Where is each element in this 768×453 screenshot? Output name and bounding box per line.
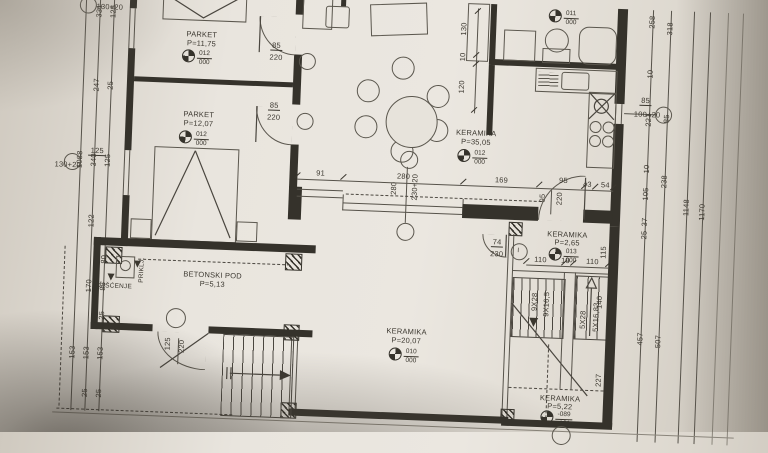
door-leaf (506, 235, 507, 257)
stair-direction-line (590, 288, 592, 336)
stair-break-line (508, 303, 590, 396)
floor-plan: 125 331 247 25 1088 125 340 122 25 80 17… (0, 0, 768, 447)
ext-stair-arrow-line (230, 373, 280, 375)
terrace-marker-triangle (107, 273, 114, 280)
door-leaf (259, 16, 260, 52)
door-leaf (256, 106, 257, 142)
ext-stair-arrow-head (280, 370, 291, 380)
stair-up-arrow (586, 278, 596, 288)
bed-headboard-lines (164, 0, 243, 19)
door-leaf (584, 178, 586, 220)
door-leaf (160, 332, 208, 370)
bed-cover-lines (155, 149, 233, 238)
scanned-floor-plan-photo: { "rooms": { "parket1": {"name": "PARKET… (0, 0, 768, 432)
boiler-cross (589, 93, 615, 120)
terrace-marker-triangle (134, 260, 141, 267)
plan-lines-layer (0, 0, 768, 447)
